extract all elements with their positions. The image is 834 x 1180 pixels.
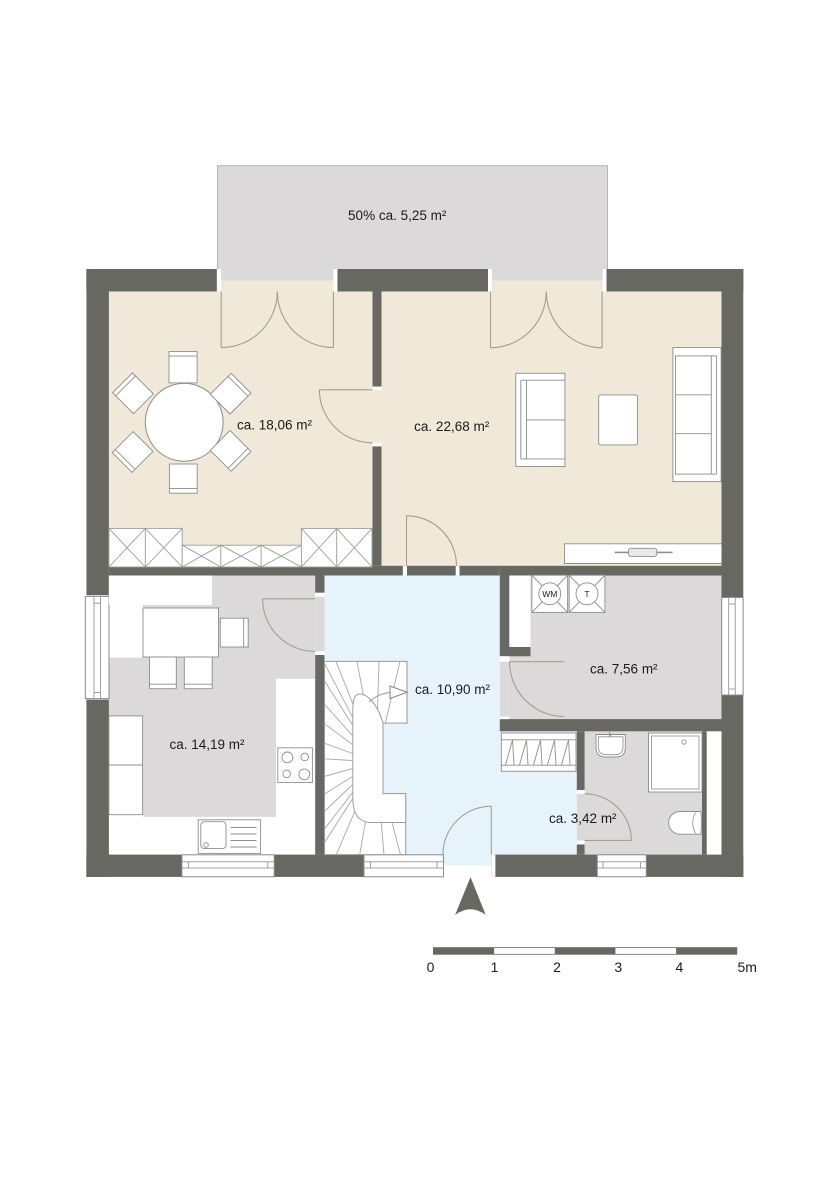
svg-text:5m: 5m: [738, 959, 757, 975]
svg-text:ca. 22,68 m²: ca. 22,68 m²: [414, 419, 490, 434]
svg-text:2: 2: [553, 959, 561, 975]
svg-text:ca. 3,42 m²: ca. 3,42 m²: [549, 811, 617, 826]
svg-text:ca. 10,90 m²: ca. 10,90 m²: [415, 682, 491, 697]
svg-text:ca. 14,19 m²: ca. 14,19 m²: [169, 737, 245, 752]
svg-text:ca. 7,56 m²: ca. 7,56 m²: [590, 662, 658, 677]
svg-text:3: 3: [614, 959, 622, 975]
svg-text:ca. 18,06 m²: ca. 18,06 m²: [237, 417, 313, 432]
svg-text:WM: WM: [542, 589, 557, 599]
svg-text:0: 0: [427, 959, 435, 975]
svg-text:50% ca. 5,25 m²: 50% ca. 5,25 m²: [348, 208, 447, 223]
svg-text:4: 4: [676, 959, 684, 975]
svg-text:T: T: [584, 589, 589, 599]
svg-text:1: 1: [491, 959, 499, 975]
